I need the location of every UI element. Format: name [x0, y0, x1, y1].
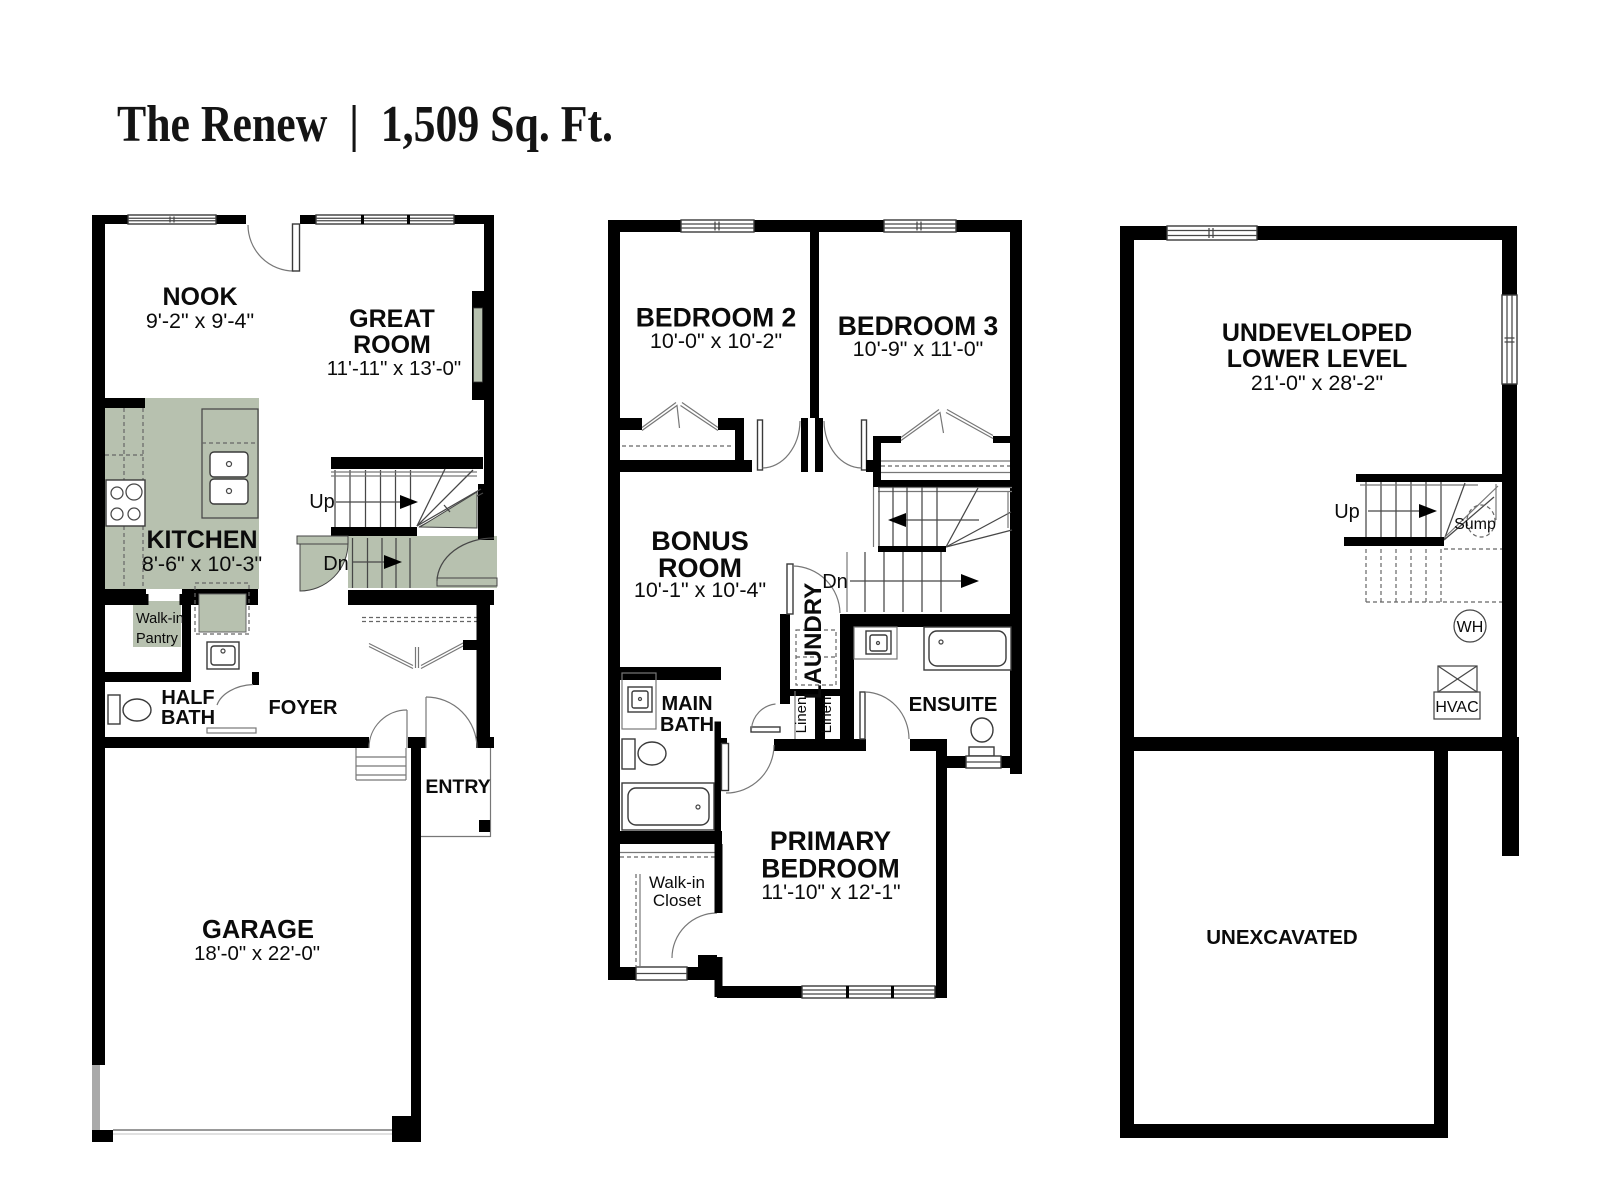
svg-text:MAIN: MAIN	[661, 693, 712, 715]
svg-text:21'-0" x 28'-2": 21'-0" x 28'-2"	[1251, 371, 1383, 395]
svg-text:BONUS: BONUS	[651, 526, 749, 556]
svg-text:18'-0" x 22'-0": 18'-0" x 22'-0"	[194, 942, 320, 965]
svg-text:Up: Up	[309, 491, 335, 513]
svg-text:8'-6" x 10'-3": 8'-6" x 10'-3"	[142, 552, 262, 576]
svg-text:KITCHEN: KITCHEN	[146, 526, 257, 554]
svg-text:11'-11" x 13'-0": 11'-11" x 13'-0"	[327, 357, 461, 380]
svg-text:Linen: Linen	[793, 697, 810, 734]
svg-text:UNDEVELOPED: UNDEVELOPED	[1222, 319, 1412, 347]
svg-text:Dn: Dn	[822, 571, 848, 593]
svg-text:10'-0" x 10'-2": 10'-0" x 10'-2"	[650, 329, 782, 353]
svg-text:Walk-in: Walk-in	[649, 873, 705, 892]
svg-text:GREAT: GREAT	[349, 305, 435, 333]
svg-text:NOOK: NOOK	[163, 283, 238, 311]
svg-text:Closet: Closet	[653, 891, 701, 910]
svg-text:HALF: HALF	[161, 687, 214, 709]
svg-text:Sump: Sump	[1454, 516, 1496, 533]
svg-text:Up: Up	[1334, 501, 1360, 523]
svg-text:The Renew | 1,509 Sq. Ft.: The Renew | 1,509 Sq. Ft.	[117, 96, 613, 153]
svg-text:10'-1" x 10'-4": 10'-1" x 10'-4"	[634, 578, 766, 602]
svg-text:BATH: BATH	[660, 714, 714, 736]
svg-text:UNEXCAVATED: UNEXCAVATED	[1206, 926, 1357, 949]
svg-text:WH: WH	[1457, 619, 1484, 636]
svg-text:Walk-in: Walk-in	[136, 611, 184, 627]
svg-text:11'-10" x 12'-1": 11'-10" x 12'-1"	[761, 881, 900, 904]
svg-text:ROOM: ROOM	[353, 331, 431, 359]
svg-text:HVAC: HVAC	[1435, 699, 1478, 716]
svg-text:Dn: Dn	[323, 553, 349, 575]
svg-text:LOWER LEVEL: LOWER LEVEL	[1227, 345, 1408, 373]
svg-text:GARAGE: GARAGE	[202, 916, 314, 944]
svg-text:PRIMARY: PRIMARY	[770, 826, 892, 856]
svg-text:10'-9" x 11'-0": 10'-9" x 11'-0"	[853, 337, 984, 361]
svg-text:LAUNDRY: LAUNDRY	[800, 583, 827, 699]
svg-text:Linen: Linen	[818, 697, 835, 734]
svg-text:BEDROOM 2: BEDROOM 2	[636, 303, 797, 333]
svg-text:FOYER: FOYER	[269, 697, 338, 719]
svg-text:Pantry: Pantry	[136, 631, 179, 647]
svg-text:ENSUITE: ENSUITE	[909, 693, 998, 716]
svg-text:9'-2" x 9'-4": 9'-2" x 9'-4"	[146, 309, 254, 333]
svg-text:BEDROOM: BEDROOM	[761, 854, 899, 884]
svg-text:BATH: BATH	[161, 707, 215, 729]
svg-text:ENTRY: ENTRY	[425, 776, 490, 798]
